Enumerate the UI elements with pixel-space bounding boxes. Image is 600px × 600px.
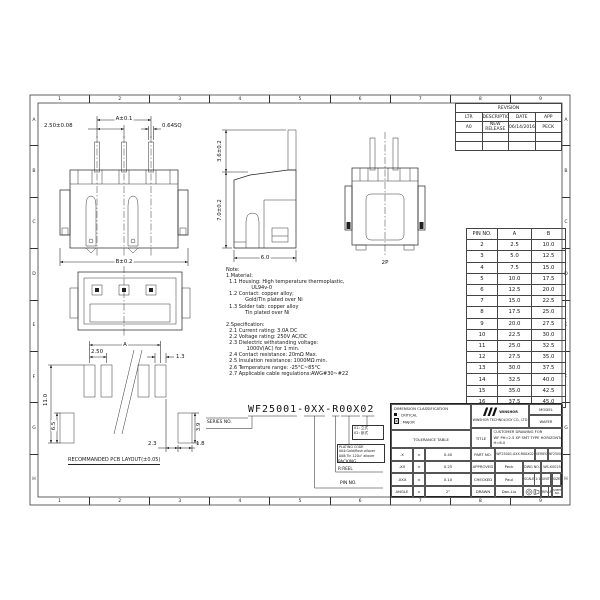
type-code-02: 02: 卧式 (353, 431, 383, 436)
tolerance-label: ANGLE (391, 486, 413, 499)
bottom-view (70, 266, 190, 336)
border-label: 7 (391, 497, 451, 505)
pin-dimension-table: PIN NO. A B 22.510.0 35.012.5 47.515.0 5… (466, 228, 566, 408)
border-label: 1 (30, 497, 90, 505)
border-label: 6 (331, 497, 391, 505)
dimension-classification-box: DIMENSION CLASSIFICATION : CRITICAL : MA… (391, 404, 471, 430)
revision-header-row: LTR DESCRIPTION DATE APP (456, 113, 562, 122)
engineering-drawing-sheet: 1 2 3 4 5 6 7 8 9 1 2 3 4 5 6 7 8 9 A B … (0, 0, 600, 600)
pin-row: 920.027.5 (467, 318, 566, 329)
border-label: G (562, 403, 570, 454)
tolerance-pm: ± (413, 461, 425, 474)
model-label: MODEL (529, 404, 563, 415)
part-no-label: PART NO. (471, 448, 495, 461)
series-value: WF25001 (548, 448, 563, 461)
sheet-no-label: SHEET NO. (553, 487, 562, 498)
tolerance-value: 0.25 (425, 461, 471, 474)
sheet-no-value: 1/1 (562, 487, 563, 498)
unit-label: UNIT (542, 474, 551, 485)
unit-cell: UNITmm (541, 473, 552, 486)
revision-empty-row (456, 133, 562, 142)
plating-code-tin: 008:Tin 120u" allover (338, 454, 384, 458)
pcb-dim-tab-height: 3.9 (196, 422, 202, 433)
tolerance-pm: ± (413, 473, 425, 486)
border-label: 5 (270, 497, 330, 505)
tolerance-value: 0.10 (425, 473, 471, 486)
border-label: 8 (451, 497, 511, 505)
pcb-dim-pitch: 2.50 (90, 349, 104, 355)
filled-square-icon (394, 413, 397, 416)
pin-row: 1535.042.5 (467, 385, 566, 396)
pcb-dim-pad-height: 6.5 (51, 421, 57, 432)
pcb-dim-tab-width: 1.8 (196, 441, 205, 447)
pin-row: 1022.530.0 (467, 329, 566, 340)
size-value: A4 (561, 474, 563, 485)
approved-value: Peck (495, 461, 523, 474)
model-value: WAFER (529, 415, 563, 428)
title-line: H=6.0 (494, 441, 564, 447)
pin-table-header-row: PIN NO. A B (467, 229, 566, 240)
border-label: H (30, 455, 38, 505)
dim-label-a: A±0.1 (115, 116, 134, 122)
pin-row: 35.012.5 (467, 251, 566, 262)
title-block: DIMENSION CLASSIFICATION : CRITICAL : MA… (390, 403, 562, 497)
series-label: SERIES (535, 448, 548, 461)
dim-label-pitch: 2.50±0.08 (44, 123, 73, 129)
projection-symbol-cell (523, 486, 541, 499)
border-label: 5 (270, 95, 330, 103)
series-no-label: SERIES NO. (207, 420, 232, 426)
dim-label-body-height: 7.0±0.2 (217, 198, 223, 222)
revision-col-date: DATE (509, 113, 536, 122)
notes-block: Note: 1.Material: 1.1 Housing: High temp… (226, 267, 348, 377)
revision-title-row: REVISION (456, 104, 562, 113)
border-label: C (30, 198, 38, 249)
classification-major: : MAJOR (400, 421, 414, 425)
size-label: SIZE (553, 474, 561, 485)
pin-row: 612.520.0 (467, 284, 566, 295)
border-label: 1 (30, 95, 90, 103)
front-view (60, 116, 188, 266)
border-label: 7 (391, 95, 451, 103)
dim-label-pin-height: 3.6±0.2 (217, 139, 223, 163)
border-label: D (30, 249, 38, 300)
size-cell: SIZEA4 (552, 473, 563, 486)
dim-label-depth: 6.0 (260, 255, 271, 261)
dim-label-b: B±0.2 (115, 259, 134, 265)
revision-table: REVISION LTR DESCRIPTION DATE APP A0 NEW… (455, 103, 562, 151)
drawing-title: CUSTOMER DRAWING FOR WF PH=2.5 XP SMT TY… (491, 428, 563, 448)
border-label: 4 (210, 497, 270, 505)
pin-row: 1330.037.5 (467, 363, 566, 374)
packing-value: R:REEL (338, 466, 353, 472)
crossed-square-icon (394, 418, 399, 423)
pcb-dim-pad-width: 1.3 (176, 354, 185, 360)
border-label: 2 (90, 95, 150, 103)
drawn-label: DRAWN (471, 486, 495, 499)
revision-row: A0 NEW RELEASE 06/14/2016 PECK (456, 122, 562, 133)
scale-cell: SCALE1:1 (523, 473, 541, 486)
border-label: E (30, 301, 38, 352)
pcb-layout-caption: RECOMMANDED PCB LAYOUT(±0.05) (68, 457, 160, 465)
pin-row: 1125.032.5 (467, 340, 566, 351)
checked-label: CHECKED (471, 473, 495, 486)
border-label: 4 (210, 95, 270, 103)
revision-col-app: APP (535, 113, 562, 122)
rev-label: REV (542, 487, 549, 498)
part-number: WF25001-0XX-R00X02 (248, 404, 374, 415)
tolerance-table-title: TOLERANCE TABLE (391, 430, 471, 448)
border-label: B (562, 146, 570, 197)
tolerance-label: .XX (391, 461, 413, 474)
pcb-dim-total-height: 11.0 (43, 393, 49, 407)
company-logo-box: WINSHOR WINSHOR TECHNOLOGY CO., LTD (471, 404, 529, 428)
border-label: 3 (150, 497, 210, 505)
side-view (222, 130, 296, 262)
border-label: 2 (90, 497, 150, 505)
revision-empty-row (456, 142, 562, 151)
pcb-dim-a: A (122, 342, 128, 348)
border-label: A (562, 95, 570, 146)
type-code-box: 01: 立式 02: 卧式 (352, 425, 384, 440)
border-label: 8 (451, 95, 511, 103)
border-numbers-bottom: 1 2 3 4 5 6 7 8 9 (30, 497, 570, 505)
dim-label-sq: 0.64SQ (162, 123, 182, 129)
revision-title: REVISION (456, 104, 562, 113)
col-b-header: B (532, 229, 566, 240)
dwg-no-value: WS-K0025 (541, 461, 563, 474)
packing-label: PACKING (338, 459, 356, 465)
dwg-no-label: DWG NO. (523, 461, 541, 474)
pin-row: 817.525.0 (467, 307, 566, 318)
tolerance-pm: ± (413, 448, 425, 461)
winshor-logo-icon (482, 407, 498, 416)
classification-critical: : CRITICAL (398, 413, 417, 417)
rear-view-2p (345, 132, 425, 256)
border-label: 6 (331, 95, 391, 103)
pin-row: 510.017.5 (467, 273, 566, 284)
company-name: WINSHOR TECHNOLOGY CO., LTD (473, 418, 528, 422)
pin-row: 715.022.5 (467, 296, 566, 307)
pin-no-label: PIN NO. (340, 481, 357, 487)
tolerance-value: 2° (425, 486, 471, 499)
revision-col-description: DESCRIPTION (482, 113, 509, 122)
logo-text: WINSHOR (499, 410, 518, 414)
border-label: F (30, 352, 38, 403)
pin-row: 1432.540.0 (467, 374, 566, 385)
rear-view-pin-count-label: 2P (382, 260, 389, 266)
sheet-cell: SHEET NO.1/1 (552, 486, 563, 499)
border-label: B (30, 146, 38, 197)
scale-label: SCALE (524, 474, 535, 485)
border-label: H (562, 455, 570, 505)
col-a-header: A (498, 229, 532, 240)
tolerance-label: .XXX (391, 473, 413, 486)
border-label: G (30, 403, 38, 454)
title-label: TITLE (471, 428, 491, 448)
pin-col-header: PIN NO. (467, 229, 498, 240)
note-line: 2.7 Applicable cable regulations:AWG#30~… (226, 371, 348, 377)
scale-value: 1:1 (535, 474, 540, 485)
drawn-value: Dan-Liu (495, 486, 523, 499)
tolerance-pm: ± (413, 486, 425, 499)
pin-row: 22.510.0 (467, 240, 566, 251)
approved-label: APPROVED (471, 461, 495, 474)
pin-row: 1227.535.0 (467, 352, 566, 363)
tolerance-value: 0.40 (425, 448, 471, 461)
tolerance-label: .X (391, 448, 413, 461)
revision-col-ltr: LTR (456, 113, 483, 122)
part-no-value: WF25001-0XX-R00X02 (495, 448, 535, 461)
pcb-dim-gap: 2.3 (148, 441, 157, 447)
border-label: A (30, 95, 38, 146)
border-label: 3 (150, 95, 210, 103)
border-numbers-top: 1 2 3 4 5 6 7 8 9 (30, 95, 570, 103)
checked-value: Paul (495, 473, 523, 486)
classification-title: DIMENSION CLASSIFICATION (394, 406, 448, 411)
border-letters-left: A B C D E F G H (30, 95, 38, 505)
pin-row: 47.515.0 (467, 262, 566, 273)
rev-cell: REVA0 (541, 486, 552, 499)
third-angle-projection-icon (525, 488, 540, 496)
